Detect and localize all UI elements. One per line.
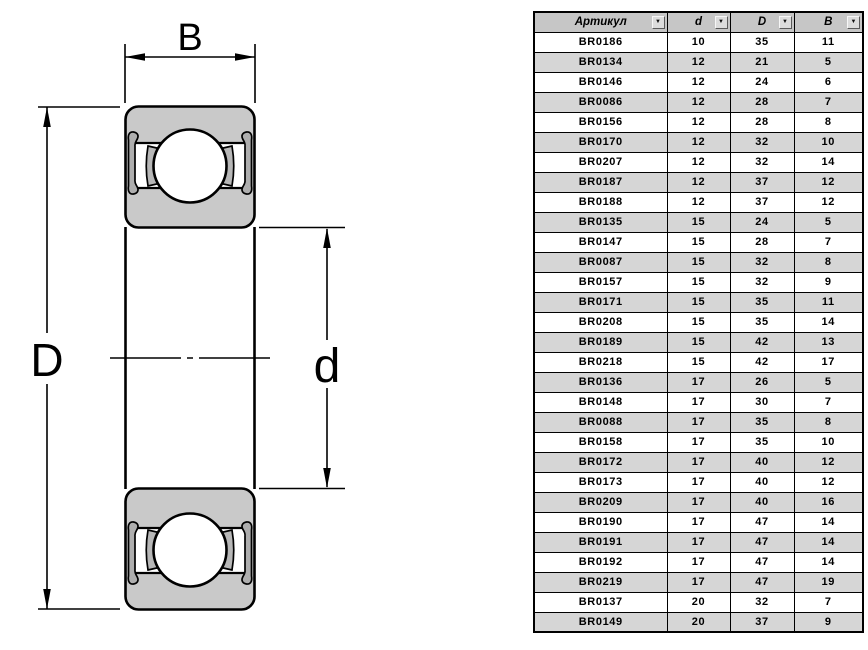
cell-B: 8: [794, 412, 863, 432]
column-header-B: B▼: [794, 12, 863, 32]
arrow-down-icon: [323, 468, 331, 488]
arrow-up-icon: [323, 228, 331, 248]
cell-D: 37: [730, 612, 794, 632]
cell-d: 17: [667, 372, 730, 392]
filter-arrow-icon: ▼: [851, 19, 857, 25]
cell-B: 7: [794, 592, 863, 612]
cell-d: 15: [667, 352, 730, 372]
cell-B: 7: [794, 92, 863, 112]
cell-D: 32: [730, 592, 794, 612]
label-outer-diameter-D: D: [30, 334, 63, 386]
cell-article: BR0149: [534, 612, 667, 632]
table-row: BR013412215: [534, 52, 863, 72]
filter-arrow-icon: ▼: [718, 19, 724, 25]
cell-D: 28: [730, 92, 794, 112]
cell-article: BR0147: [534, 232, 667, 252]
column-label-article: Артикул: [575, 16, 627, 28]
cell-article: BR0088: [534, 412, 667, 432]
cell-d: 15: [667, 232, 730, 252]
cell-D: 47: [730, 532, 794, 552]
cell-article: BR0086: [534, 92, 667, 112]
cell-article: BR0137: [534, 592, 667, 612]
cell-B: 12: [794, 172, 863, 192]
cell-B: 14: [794, 512, 863, 532]
cell-d: 12: [667, 112, 730, 132]
cell-d: 17: [667, 412, 730, 432]
label-bore-diameter-d: d: [314, 340, 341, 393]
cell-d: 17: [667, 552, 730, 572]
cell-d: 17: [667, 472, 730, 492]
cell-d: 10: [667, 32, 730, 52]
cell-D: 42: [730, 332, 794, 352]
table-row: BR0171153511: [534, 292, 863, 312]
cell-B: 14: [794, 532, 863, 552]
table-row: BR0218154217: [534, 352, 863, 372]
cell-article: BR0136: [534, 372, 667, 392]
cell-article: BR0172: [534, 452, 667, 472]
table-row: BR0209174016: [534, 492, 863, 512]
cell-B: 10: [794, 132, 863, 152]
cell-D: 30: [730, 392, 794, 412]
table-row: BR0192174714: [534, 552, 863, 572]
cell-D: 35: [730, 412, 794, 432]
cell-article: BR0148: [534, 392, 667, 412]
table-row: BR013515245: [534, 212, 863, 232]
cell-D: 28: [730, 112, 794, 132]
cell-D: 32: [730, 252, 794, 272]
cell-B: 19: [794, 572, 863, 592]
cell-D: 37: [730, 172, 794, 192]
cell-article: BR0219: [534, 572, 667, 592]
cell-d: 17: [667, 532, 730, 552]
table-row: BR0173174012: [534, 472, 863, 492]
cell-B: 14: [794, 152, 863, 172]
filter-arrow-icon: ▼: [655, 19, 661, 25]
cell-article: BR0187: [534, 172, 667, 192]
column-header-d: d▼: [667, 12, 730, 32]
table-row: BR014817307: [534, 392, 863, 412]
table-row: BR0207123214: [534, 152, 863, 172]
cell-B: 12: [794, 472, 863, 492]
cell-d: 12: [667, 92, 730, 112]
filter-dropdown-button-d[interactable]: ▼: [715, 16, 728, 29]
table-row: BR0172174012: [534, 452, 863, 472]
cell-B: 5: [794, 372, 863, 392]
cell-article: BR0135: [534, 212, 667, 232]
cell-D: 42: [730, 352, 794, 372]
cell-d: 17: [667, 452, 730, 472]
cell-B: 16: [794, 492, 863, 512]
cell-article: BR0134: [534, 52, 667, 72]
column-label-D: D: [758, 16, 766, 28]
cell-d: 17: [667, 512, 730, 532]
cell-B: 8: [794, 252, 863, 272]
arrow-right-icon: [235, 53, 255, 61]
cell-D: 40: [730, 452, 794, 472]
cell-B: 9: [794, 272, 863, 292]
cell-article: BR0208: [534, 312, 667, 332]
table-row: BR008715328: [534, 252, 863, 272]
cell-article: BR0146: [534, 72, 667, 92]
column-label-B: B: [824, 16, 832, 28]
cell-B: 6: [794, 72, 863, 92]
filter-arrow-icon: ▼: [782, 19, 788, 25]
cell-D: 35: [730, 432, 794, 452]
bearing-upper-section: [126, 107, 255, 228]
arrow-up-icon: [43, 107, 51, 127]
cell-B: 12: [794, 452, 863, 472]
cell-D: 47: [730, 552, 794, 572]
cell-article: BR0188: [534, 192, 667, 212]
cell-article: BR0173: [534, 472, 667, 492]
table-row: BR0186103511: [534, 32, 863, 52]
cell-article: BR0207: [534, 152, 667, 172]
cell-d: 12: [667, 192, 730, 212]
cell-d: 15: [667, 272, 730, 292]
cell-D: 35: [730, 292, 794, 312]
table-row: BR013720327: [534, 592, 863, 612]
cell-article: BR0156: [534, 112, 667, 132]
bearing-dimension-drawing: B D d: [0, 0, 530, 650]
cell-article: BR0218: [534, 352, 667, 372]
cell-d: 17: [667, 432, 730, 452]
filter-dropdown-button-article[interactable]: ▼: [652, 16, 665, 29]
cell-d: 12: [667, 52, 730, 72]
cell-article: BR0189: [534, 332, 667, 352]
table-row: BR015612288: [534, 112, 863, 132]
cell-d: 17: [667, 392, 730, 412]
cell-D: 35: [730, 32, 794, 52]
bearing-spec-table: Артикул▼d▼D▼B▼ BR0186103511BR013412215BR…: [533, 11, 864, 633]
cell-article: BR0192: [534, 552, 667, 572]
cell-article: BR0170: [534, 132, 667, 152]
table-row: BR014920379: [534, 612, 863, 632]
cell-article: BR0209: [534, 492, 667, 512]
table-row: BR014612246: [534, 72, 863, 92]
table-row: BR0170123210: [534, 132, 863, 152]
cell-B: 14: [794, 312, 863, 332]
column-header-article: Артикул▼: [534, 12, 667, 32]
arrow-down-icon: [43, 589, 51, 609]
label-width-B: B: [177, 17, 202, 59]
cell-B: 10: [794, 432, 863, 452]
cell-B: 7: [794, 392, 863, 412]
cell-D: 37: [730, 192, 794, 212]
cell-d: 15: [667, 312, 730, 332]
table-header-row: Артикул▼d▼D▼B▼: [534, 12, 863, 32]
cell-article: BR0158: [534, 432, 667, 452]
cell-B: 5: [794, 212, 863, 232]
column-label-d: d: [695, 16, 702, 28]
bearing-lower-section: [126, 489, 255, 610]
cell-D: 26: [730, 372, 794, 392]
table-row: BR0189154213: [534, 332, 863, 352]
cell-d: 12: [667, 72, 730, 92]
cell-B: 11: [794, 292, 863, 312]
cell-D: 24: [730, 212, 794, 232]
cell-d: 17: [667, 492, 730, 512]
arrow-left-icon: [125, 53, 145, 61]
table-row: BR0158173510: [534, 432, 863, 452]
cell-D: 35: [730, 312, 794, 332]
cell-D: 24: [730, 72, 794, 92]
cell-d: 20: [667, 592, 730, 612]
cell-D: 40: [730, 472, 794, 492]
cell-D: 47: [730, 572, 794, 592]
cell-d: 12: [667, 152, 730, 172]
table-row: BR008612287: [534, 92, 863, 112]
cell-D: 28: [730, 232, 794, 252]
cell-B: 14: [794, 552, 863, 572]
filter-dropdown-button-D[interactable]: ▼: [779, 16, 792, 29]
cell-B: 12: [794, 192, 863, 212]
spec-table: Артикул▼d▼D▼B▼ BR0186103511BR013412215BR…: [533, 11, 864, 633]
cell-article: BR0191: [534, 532, 667, 552]
cell-d: 12: [667, 132, 730, 152]
cell-d: 15: [667, 252, 730, 272]
cell-article: BR0171: [534, 292, 667, 312]
cell-B: 7: [794, 232, 863, 252]
cell-D: 40: [730, 492, 794, 512]
cell-d: 15: [667, 212, 730, 232]
cell-article: BR0190: [534, 512, 667, 532]
cell-B: 8: [794, 112, 863, 132]
cell-D: 21: [730, 52, 794, 72]
cell-D: 32: [730, 132, 794, 152]
table-row: BR015715329: [534, 272, 863, 292]
cell-d: 20: [667, 612, 730, 632]
table-row: BR008817358: [534, 412, 863, 432]
cell-D: 32: [730, 272, 794, 292]
table-row: BR0219174719: [534, 572, 863, 592]
cell-d: 17: [667, 572, 730, 592]
cell-article: BR0157: [534, 272, 667, 292]
cell-B: 13: [794, 332, 863, 352]
column-header-D: D▼: [730, 12, 794, 32]
cell-D: 32: [730, 152, 794, 172]
cell-B: 17: [794, 352, 863, 372]
table-row: BR0188123712: [534, 192, 863, 212]
table-row: BR0190174714: [534, 512, 863, 532]
cell-d: 15: [667, 332, 730, 352]
cell-article: BR0186: [534, 32, 667, 52]
cell-B: 5: [794, 52, 863, 72]
filter-dropdown-button-B[interactable]: ▼: [847, 16, 860, 29]
cell-article: BR0087: [534, 252, 667, 272]
table-row: BR0208153514: [534, 312, 863, 332]
cell-B: 9: [794, 612, 863, 632]
table-row: BR013617265: [534, 372, 863, 392]
cell-B: 11: [794, 32, 863, 52]
table-row: BR0191174714: [534, 532, 863, 552]
cell-d: 12: [667, 172, 730, 192]
table-row: BR0187123712: [534, 172, 863, 192]
cell-d: 15: [667, 292, 730, 312]
table-row: BR014715287: [534, 232, 863, 252]
cell-D: 47: [730, 512, 794, 532]
